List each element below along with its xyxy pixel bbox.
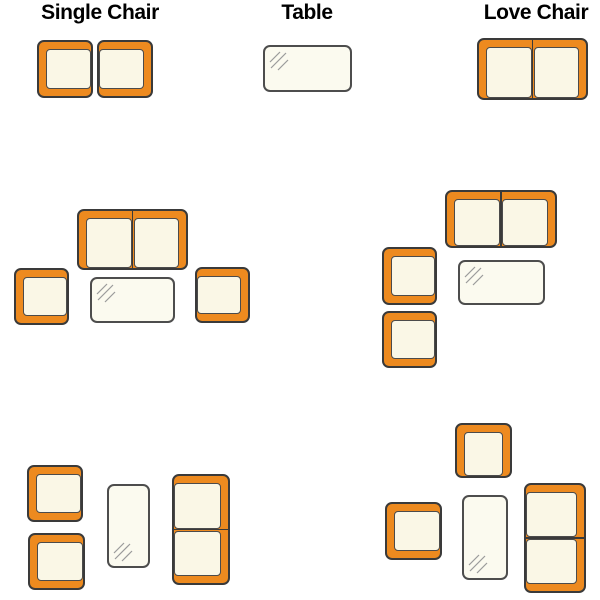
table	[90, 277, 175, 323]
seat-divider	[532, 40, 534, 98]
single-chair	[14, 268, 69, 325]
seat-cushion	[86, 218, 132, 268]
single-chair	[195, 267, 250, 323]
seat-cushion	[46, 49, 91, 89]
glass-shine-icon	[268, 50, 290, 72]
love-chair	[477, 38, 588, 100]
love-chair	[77, 209, 188, 270]
seat-cushion	[464, 432, 503, 476]
single-chair	[27, 465, 83, 522]
seat-cushion	[454, 199, 500, 246]
seat-cushion	[526, 492, 577, 537]
seat-cushion	[37, 542, 83, 581]
seat-cushion	[174, 531, 221, 577]
table	[263, 45, 352, 92]
seat-cushion	[486, 47, 532, 98]
legend-label-love-chair: Love Chair	[484, 1, 589, 25]
glass-shine-icon	[467, 553, 489, 575]
single-chair	[382, 311, 437, 368]
love-chair	[524, 483, 586, 593]
seat-cushion	[23, 277, 67, 316]
seat-cushion	[502, 199, 548, 246]
love-chair	[445, 190, 557, 248]
love-chair	[172, 474, 230, 585]
seat-divider	[132, 211, 134, 268]
legend-label-single-chair: Single Chair	[41, 1, 159, 25]
table	[462, 495, 508, 580]
single-chair	[455, 423, 512, 478]
seat-cushion	[526, 539, 577, 584]
seat-cushion	[391, 256, 435, 296]
single-chair	[382, 247, 437, 305]
legend-label-table: Table	[281, 1, 332, 25]
single-chair	[385, 502, 442, 560]
seat-cushion	[197, 276, 241, 314]
seat-cushion	[36, 474, 81, 513]
table	[458, 260, 545, 305]
glass-shine-icon	[112, 541, 134, 563]
furniture-configuration-diagram: Single Chair Table Love Chair	[0, 0, 600, 600]
table	[107, 484, 150, 568]
single-chair	[28, 533, 85, 590]
seat-cushion	[99, 49, 144, 89]
seat-cushion	[134, 218, 180, 268]
single-chair	[97, 40, 153, 98]
glass-shine-icon	[95, 282, 117, 304]
seat-cushion	[174, 483, 221, 529]
seat-cushion	[534, 47, 580, 98]
seat-cushion	[391, 320, 435, 359]
glass-shine-icon	[463, 265, 485, 287]
single-chair	[37, 40, 93, 98]
seat-divider	[174, 529, 228, 531]
seat-cushion	[394, 511, 440, 551]
